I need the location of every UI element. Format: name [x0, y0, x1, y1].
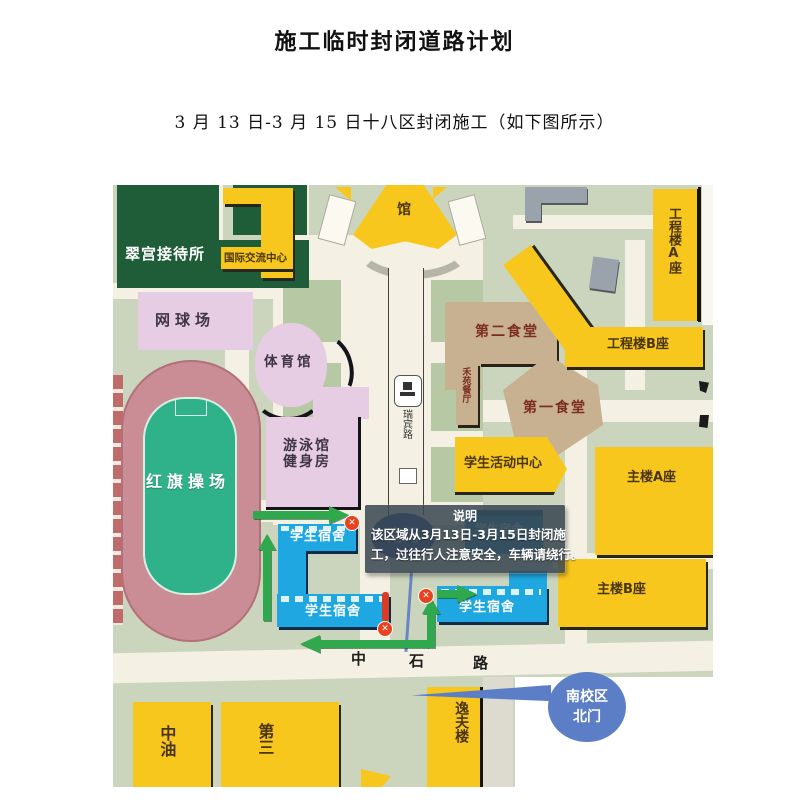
- yifu-label: 逸夫楼: [453, 701, 469, 743]
- central-path-label: 瑞宾路: [400, 409, 412, 439]
- activity-center-label: 学生活动中心: [464, 457, 542, 472]
- hall-wing: [433, 187, 447, 199]
- edge-gate-mark: [699, 381, 709, 393]
- zhongyou-label: 中油: [157, 725, 175, 757]
- dorm-1-label: 学生宿舍: [290, 530, 346, 545]
- disan-label: 第三: [255, 723, 273, 755]
- detour-arrow-right: [253, 506, 349, 524]
- zhongshi-char: 中: [351, 651, 366, 668]
- note-heading: 说明: [365, 507, 565, 524]
- detour-arrow-up: [422, 598, 440, 648]
- north-gate-ellipse: 南校区 北门: [548, 672, 626, 742]
- x-glyph: ✕: [348, 518, 356, 528]
- closure-note: 说明 该区域从3月13日-3月15日封闭施 工，过往行人注意安全，车辆请绕行。: [365, 505, 565, 573]
- map-east-white-strip: [702, 185, 713, 325]
- canteen2-label: 第二食堂: [475, 324, 539, 340]
- football-field: [143, 397, 237, 595]
- document-page: 施工临时封闭道路计划 3 月 13 日-3 月 15 日十八区封闭施工（如下图所…: [0, 0, 789, 807]
- closure-x-icon: ✕: [377, 621, 393, 637]
- zhongshi-char: 路: [473, 655, 488, 672]
- walkway-kiosk: [399, 468, 417, 484]
- canteen1-label: 第一食堂: [523, 400, 587, 416]
- edge-gate-mark: [699, 415, 709, 428]
- building-cuigong: [117, 185, 219, 243]
- dorm-3-label: 学生宿舍: [459, 601, 515, 616]
- main-a-label: 主楼A座: [627, 471, 676, 486]
- pool-label-line2: 健身房: [283, 454, 331, 470]
- monument-icon: [394, 375, 422, 407]
- intl-center-label: 国际交流中心: [224, 252, 287, 264]
- note-line1: 该区域从3月13日-3月15日封闭施: [371, 524, 566, 543]
- gray-building: [525, 201, 541, 221]
- closure-x-icon: ✕: [418, 588, 434, 604]
- building-disan: [221, 702, 339, 787]
- note-line2: 工，过往行人注意安全，车辆请绕行。: [371, 544, 584, 563]
- hall-label: 馆: [397, 202, 411, 218]
- page-subtitle: 3 月 13 日-3 月 15 日十八区封闭施工（如下图所示）: [0, 108, 789, 133]
- dorm-windows: [281, 596, 385, 602]
- campus-map: 翠宫接待所 国际交流中心 网球场 体育馆 游泳馆 健身房 红旗操场: [113, 185, 713, 787]
- gray-building: [589, 256, 619, 291]
- playground-label: 红旗操场: [146, 473, 230, 491]
- main-b-label: 主楼B座: [597, 583, 646, 598]
- cuigong-label: 翠宫接待所: [125, 246, 205, 263]
- pool-label: 游泳馆 健身房: [283, 438, 331, 470]
- closure-bar: [382, 592, 389, 622]
- detour-arrow-up: [258, 534, 276, 621]
- detour-arrow-right: [437, 585, 475, 603]
- north-gate-label-line1: 南校区: [548, 686, 626, 706]
- road-eng-vertical: [625, 240, 645, 390]
- tennis-label: 网球场: [155, 312, 215, 329]
- goal-box: [175, 399, 207, 416]
- x-glyph: ✕: [381, 624, 389, 634]
- eng-a-label: 工程楼A座: [665, 207, 680, 274]
- closure-x-icon: ✕: [344, 515, 360, 531]
- small-building: [361, 769, 391, 787]
- x-glyph: ✕: [422, 591, 430, 601]
- building-dorm-1: [278, 551, 306, 595]
- building-pool: [313, 387, 369, 419]
- page-title: 施工临时封闭道路计划: [0, 24, 789, 56]
- north-gate-label-line2: 北门: [548, 706, 626, 726]
- gym-label: 体育馆: [264, 355, 314, 371]
- zhongshi-char: 石: [409, 653, 424, 670]
- dorm-2-label: 学生宿舍: [305, 605, 361, 620]
- building-main-a: [595, 447, 713, 555]
- heyuan-label: 禾苑餐厅: [460, 367, 470, 403]
- eng-b-label: 工程楼B座: [607, 338, 669, 353]
- pool-label-line1: 游泳馆: [283, 438, 331, 454]
